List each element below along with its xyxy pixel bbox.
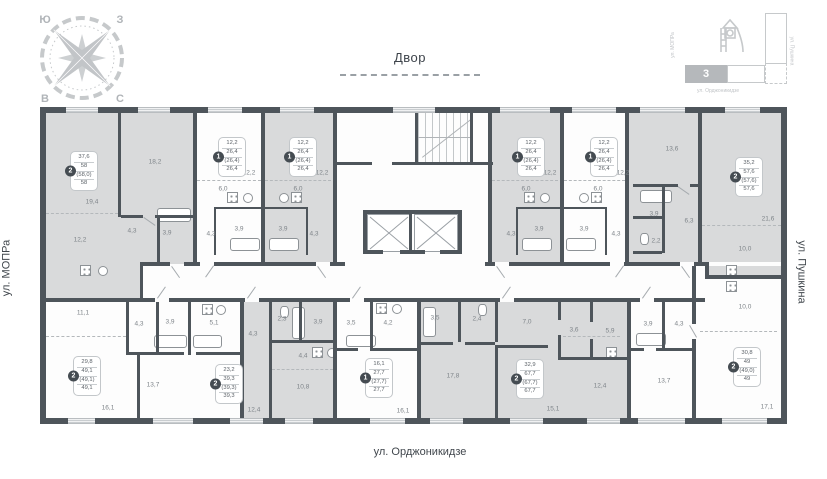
room-area-label: 4,4 <box>298 353 307 360</box>
apartment-badge[interactable]: 112,226,4(26,4)26,4 <box>218 137 246 177</box>
room-area-label: 4,3 <box>127 228 136 235</box>
wall <box>126 302 129 355</box>
zone-dashed-line <box>272 369 333 370</box>
wall <box>155 215 193 218</box>
apartment-area-value: (49,1) <box>77 376 97 385</box>
door-swing-line <box>689 325 697 338</box>
apartment-area-value: 35,2 <box>739 160 759 168</box>
room-area-label: 13,6 <box>666 146 679 153</box>
wall <box>330 262 345 266</box>
courtyard-dashed-line <box>340 74 480 76</box>
room-area-label: 6,0 <box>521 186 530 193</box>
apartment-area-value: 12,2 <box>594 140 614 148</box>
window <box>208 107 242 113</box>
wall <box>558 302 561 320</box>
window <box>725 107 760 113</box>
wall <box>690 184 698 187</box>
apartment-area-value: (26,4) <box>293 157 313 166</box>
window <box>510 418 543 424</box>
wall <box>337 348 358 351</box>
room-area-label: 17,1 <box>761 404 774 411</box>
room-area-label: 10,0 <box>739 304 752 311</box>
wall <box>458 210 462 254</box>
wall <box>516 207 560 209</box>
playground-icon <box>712 16 748 56</box>
window <box>285 418 313 424</box>
room-area-label: 6,3 <box>684 218 693 225</box>
minimap-street-right: ул. Пушкина <box>788 37 794 66</box>
apartment-rooms-count: 2 <box>65 166 76 177</box>
apartment-area-value: 12,2 <box>521 140 541 148</box>
room-area-label: 17,8 <box>447 373 460 380</box>
wall <box>415 113 418 162</box>
room-area-label: 12,2 <box>617 170 630 177</box>
courtyard-label-block: Двор <box>340 50 480 76</box>
apartment-area-value: 37,6 <box>74 154 94 162</box>
elevator-shaft <box>414 214 458 252</box>
window <box>66 107 98 113</box>
apartment-area-value: 12,2 <box>222 140 242 148</box>
room-area-label: 7,0 <box>522 319 531 326</box>
apartment-rooms-count: 1 <box>284 152 295 163</box>
room-area-label: 4,3 <box>309 231 318 238</box>
apartment-area-value: 26,4 <box>594 165 614 174</box>
room-area-label: 12,2 <box>316 170 329 177</box>
sink-icon <box>279 193 289 203</box>
apartment-area-value: 26,4 <box>222 148 242 157</box>
minimap-current-section[interactable]: 3 <box>685 65 727 83</box>
room-area-label: 21,6 <box>762 216 775 223</box>
room-area-label: 5,1 <box>209 320 218 327</box>
wall <box>364 298 500 302</box>
wall <box>495 302 498 342</box>
room-area-label: 19,4 <box>86 199 99 206</box>
room-area-label: 2,3 <box>277 316 286 323</box>
wall <box>140 262 143 298</box>
apartment-area-value: 26,4 <box>293 165 313 174</box>
wall <box>633 184 678 187</box>
apartment-area-value: 57,6 <box>739 168 759 177</box>
wall <box>363 210 367 254</box>
room-area-label: 3,9 <box>162 230 171 237</box>
wall <box>184 262 200 266</box>
apartment-rooms-count: 1 <box>360 373 371 384</box>
apartment-area-value: (26,4) <box>521 157 541 166</box>
apartment-area-value: 49 <box>737 375 757 384</box>
wall <box>624 262 680 266</box>
room-area-label: 5,9 <box>605 328 614 335</box>
room-area-label: 4,2 <box>383 320 392 327</box>
wall <box>265 207 308 209</box>
apartment-area-value: 26,4 <box>521 148 541 157</box>
wall <box>126 352 184 355</box>
svg-text:С: С <box>116 93 124 105</box>
minimap-adjacent-section <box>727 65 765 83</box>
apartment-area-value: 27,7 <box>369 369 389 378</box>
apartment-area-value: (27,7) <box>369 378 389 387</box>
wall <box>335 162 372 165</box>
apartment-area-value: (67,7) <box>520 379 540 388</box>
stove-icon <box>726 281 737 292</box>
apartment-area-value: 27,7 <box>369 386 389 395</box>
minimap-street-left: ул. МОПРа <box>670 32 676 58</box>
zone-dashed-line <box>265 180 331 181</box>
wall <box>662 302 665 348</box>
zone-dashed-line <box>46 336 126 337</box>
apartment-rooms-count: 2 <box>210 379 221 390</box>
door-swing-line <box>352 287 361 299</box>
toilet-icon <box>478 304 487 316</box>
stove-icon <box>202 304 213 315</box>
staircase <box>418 111 472 164</box>
wall <box>625 113 629 262</box>
door-swing-line <box>496 266 505 278</box>
room-area-label: 3,9 <box>649 211 658 218</box>
window <box>722 418 767 424</box>
room-area-label: 12,4 <box>248 407 261 414</box>
room-area-label: 12,4 <box>594 383 607 390</box>
window <box>138 107 170 113</box>
stove-icon <box>376 303 387 314</box>
apartment-badge[interactable]: 116,127,7(27,7)27,7 <box>365 358 393 398</box>
wall <box>633 251 662 254</box>
wall <box>440 250 462 254</box>
room-area-label: 6,0 <box>593 186 602 193</box>
zone-dashed-line <box>563 336 620 337</box>
room-area-label: 3,5 <box>346 320 355 327</box>
apartment-rooms-count: 2 <box>68 371 79 382</box>
room-area-label: 12,2 <box>74 237 87 244</box>
sink-icon <box>98 266 108 276</box>
apartment-badge[interactable]: 237,658(58,0)58 <box>70 151 98 191</box>
apartment-badge[interactable]: 229,849,1(49,1)49,1 <box>73 356 101 396</box>
room-area-label: 10,8 <box>297 384 310 391</box>
wall <box>558 357 630 360</box>
room-area-label: 2,2 <box>651 238 660 245</box>
apartment-area-value: 16,1 <box>369 361 389 369</box>
room-area-label: 4,3 <box>674 321 683 328</box>
wall <box>495 345 498 418</box>
street-label-mopra: ул. МОПРа <box>0 240 12 297</box>
wall <box>514 298 640 302</box>
wall <box>214 262 316 266</box>
window <box>640 107 685 113</box>
street-label-pushkina: ул. Пушкина <box>796 240 808 303</box>
bathtub-icon <box>423 307 436 337</box>
wall <box>40 298 155 302</box>
bathtub-icon <box>522 238 552 251</box>
apartment-area-value: 32,9 <box>520 362 540 370</box>
apartment-badge[interactable]: 112,226,4(26,4)26,4 <box>517 137 545 177</box>
apartment-badge[interactable]: 235,257,6(57,6)57,6 <box>735 157 763 197</box>
window <box>370 418 405 424</box>
window <box>230 418 263 424</box>
stove-icon <box>227 192 238 203</box>
door-swing-line <box>681 266 690 278</box>
bathtub-icon <box>269 238 299 251</box>
minimap-section-number: 3 <box>703 68 709 80</box>
wall <box>485 262 495 266</box>
wall <box>400 250 425 254</box>
room-area-label: 18,2 <box>149 159 162 166</box>
room-area-label: 12,2 <box>544 170 557 177</box>
bathtub-icon <box>640 190 672 203</box>
wall <box>196 352 240 355</box>
room-area-label: 16,1 <box>102 405 115 412</box>
wall <box>140 262 170 266</box>
svg-text:Ю: Ю <box>39 14 50 26</box>
minimap-street-bottom: ул. Орджоникидзе <box>697 88 739 94</box>
apartment-area-value: (26,4) <box>222 157 242 166</box>
room-area-label: 3,9 <box>278 226 287 233</box>
apartment-area-value: 67,7 <box>520 370 540 379</box>
wall <box>193 113 197 262</box>
door-swing-line <box>157 287 166 299</box>
room-area-label: 4,3 <box>248 331 257 338</box>
apartment-area-value: 26,4 <box>222 165 242 174</box>
compass-rose: Ю З В С <box>30 6 134 106</box>
room-area-label: 16,1 <box>397 408 410 415</box>
apartment-badge[interactable]: 112,226,4(26,4)26,4 <box>289 137 317 177</box>
door-swing-line <box>247 287 256 299</box>
stove-icon <box>312 347 323 358</box>
wall <box>698 113 702 262</box>
apartment-area-value: (49,0) <box>737 367 757 376</box>
wall <box>370 348 417 351</box>
room-area-label: 11,1 <box>77 310 89 317</box>
zone-dashed-line <box>492 180 558 181</box>
wall <box>605 209 607 255</box>
location-minimap[interactable]: 3 ул. МОПРа ул. Пушкина ул. Орджоникидзе <box>672 8 804 104</box>
zone-dashed-line <box>702 225 781 226</box>
bathtub-icon <box>566 238 596 251</box>
wall <box>421 342 453 345</box>
apartment-area-value: 30,8 <box>737 350 757 358</box>
wall <box>269 302 272 342</box>
wall <box>169 298 245 302</box>
zone-dashed-line <box>46 213 118 214</box>
room-area-label: 2,4 <box>472 316 481 323</box>
apartment-rooms-count: 1 <box>512 152 523 163</box>
wall <box>121 215 143 218</box>
apartment-badge[interactable]: 223,239,3(39,3)39,3 <box>215 364 243 404</box>
apartment-area-value: 67,7 <box>520 387 540 396</box>
wall <box>781 107 787 424</box>
room-area-label: 3,6 <box>569 327 578 334</box>
stove-icon <box>80 265 91 276</box>
room-fill <box>705 266 781 275</box>
window <box>638 418 685 424</box>
wall <box>509 262 610 266</box>
room-area-label: 4,3 <box>206 231 215 238</box>
room-area-label: 4,3 <box>611 231 620 238</box>
apartment-area-value: 49 <box>737 358 757 367</box>
window <box>393 107 435 113</box>
wall <box>261 113 265 262</box>
apartment-area-value: 39,3 <box>219 392 239 401</box>
minimap-building-wing <box>765 13 787 65</box>
wall <box>157 218 160 262</box>
zone-dashed-line <box>564 180 625 181</box>
sink-icon <box>579 193 589 203</box>
wall <box>156 302 159 355</box>
wall <box>306 209 308 255</box>
wall <box>692 266 696 324</box>
apartment-rooms-count: 1 <box>585 152 596 163</box>
room-area-label: 3,9 <box>643 321 652 328</box>
svg-text:З: З <box>117 14 124 26</box>
window <box>153 418 193 424</box>
apartment-area-value: (58,0) <box>74 171 94 180</box>
wall <box>269 343 272 418</box>
bathtub-icon <box>230 238 260 251</box>
apartment-area-value: (57,6) <box>739 177 759 186</box>
stove-icon <box>291 192 302 203</box>
courtyard-label: Двор <box>340 50 480 65</box>
apartment-area-value: (39,3) <box>219 384 239 393</box>
room-area-label: 3,9 <box>534 226 543 233</box>
sink-icon <box>392 304 402 314</box>
bathtub-icon <box>193 335 222 348</box>
wall <box>470 113 473 162</box>
window <box>280 107 314 113</box>
room-fill <box>46 264 140 298</box>
apartment-rooms-count: 2 <box>728 362 739 373</box>
apartment-area-value: 49,1 <box>77 384 97 393</box>
window <box>500 107 550 113</box>
wall <box>458 302 461 342</box>
room-area-label: 15,1 <box>547 406 560 413</box>
window <box>572 107 616 113</box>
room-area-label: 13,7 <box>658 378 671 385</box>
wall <box>498 345 548 348</box>
wall <box>692 339 696 418</box>
wall <box>417 302 421 418</box>
wall <box>564 207 607 209</box>
room-area-label: 3,5 <box>430 315 439 322</box>
apartment-badge[interactable]: 232,967,7(67,7)67,7 <box>516 359 544 399</box>
wall <box>488 113 492 262</box>
wall <box>630 348 644 351</box>
wall <box>656 348 692 351</box>
apartment-area-value: 26,4 <box>293 148 313 157</box>
sink-icon <box>540 193 550 203</box>
wall <box>662 187 665 253</box>
wall <box>465 342 495 345</box>
apartment-area-value: 57,6 <box>739 185 759 194</box>
room-area-label: 3,9 <box>313 319 322 326</box>
door-swing-line <box>642 287 651 299</box>
apartment-rooms-count: 2 <box>730 172 741 183</box>
wall <box>363 210 462 214</box>
room-area-label: 4,3 <box>506 231 515 238</box>
apartment-badge[interactable]: 230,849(49,0)49 <box>733 347 761 387</box>
wall <box>363 250 383 254</box>
window <box>68 418 95 424</box>
door-swing-line <box>317 266 326 278</box>
wall <box>118 113 121 217</box>
apartment-area-value: 26,4 <box>594 148 614 157</box>
apartment-rooms-count: 1 <box>213 152 224 163</box>
door-swing-line <box>502 287 511 299</box>
door-swing-line <box>171 266 180 278</box>
floor-plan-page: Ю З В С Двор ул. МОПРа ул. Пушкина ул. О… <box>0 0 827 479</box>
apartment-area-value: 49,1 <box>77 367 97 376</box>
wall <box>269 340 335 343</box>
room-area-label: 4,3 <box>134 321 143 328</box>
zone-dashed-line <box>700 331 777 332</box>
door-swing-line <box>615 265 624 277</box>
apartment-area-value: 29,8 <box>77 359 97 367</box>
apartment-area-value: 12,2 <box>293 140 313 148</box>
room-area-label: 6,0 <box>218 186 227 193</box>
wall <box>370 302 373 348</box>
floor-plan: 19,418,212,24,33,912,26,03,94,312,26,03,… <box>40 107 787 424</box>
sink-icon <box>216 305 226 315</box>
wall <box>409 214 412 254</box>
stove-icon <box>591 192 602 203</box>
svg-text:В: В <box>41 93 49 105</box>
wall <box>40 107 46 424</box>
apartment-area-value: 58 <box>74 179 94 188</box>
wall <box>214 207 261 209</box>
wall <box>705 275 781 279</box>
apartment-badge[interactable]: 112,226,4(26,4)26,4 <box>590 137 618 177</box>
room-area-label: 6,0 <box>293 186 302 193</box>
wall <box>333 113 337 262</box>
room-area-label: 10,0 <box>739 246 752 253</box>
wall <box>333 302 337 418</box>
wall <box>627 302 631 418</box>
wall <box>299 302 302 342</box>
apartment-area-value: (26,4) <box>594 157 614 166</box>
wall <box>137 355 140 418</box>
wall <box>392 162 493 165</box>
elevator-shaft <box>367 214 411 252</box>
room-area-label: 13,7 <box>147 382 160 389</box>
room-area-label: 3,9 <box>234 226 243 233</box>
apartment-area-value: 58 <box>74 162 94 171</box>
wall <box>590 302 593 322</box>
zone-dashed-line <box>197 180 261 181</box>
sink-icon <box>243 193 253 203</box>
wall <box>188 302 191 355</box>
wall <box>516 209 518 255</box>
apartment-rooms-count: 2 <box>511 374 522 385</box>
apartment-area-value: 39,3 <box>219 375 239 384</box>
door-swing-line <box>205 265 214 277</box>
wall <box>560 113 564 262</box>
window <box>430 418 463 424</box>
street-label-ordzhonikidze: ул. Орджоникидзе <box>310 446 530 458</box>
stove-icon <box>524 192 535 203</box>
minimap-building-wing-dashed <box>765 63 787 84</box>
toilet-icon <box>640 233 649 245</box>
room-area-label: 3,9 <box>579 226 588 233</box>
room-area-label: 3,9 <box>165 319 174 326</box>
window <box>587 418 620 424</box>
apartment-area-value: 26,4 <box>521 165 541 174</box>
apartment-area-value: 23,2 <box>219 367 239 375</box>
